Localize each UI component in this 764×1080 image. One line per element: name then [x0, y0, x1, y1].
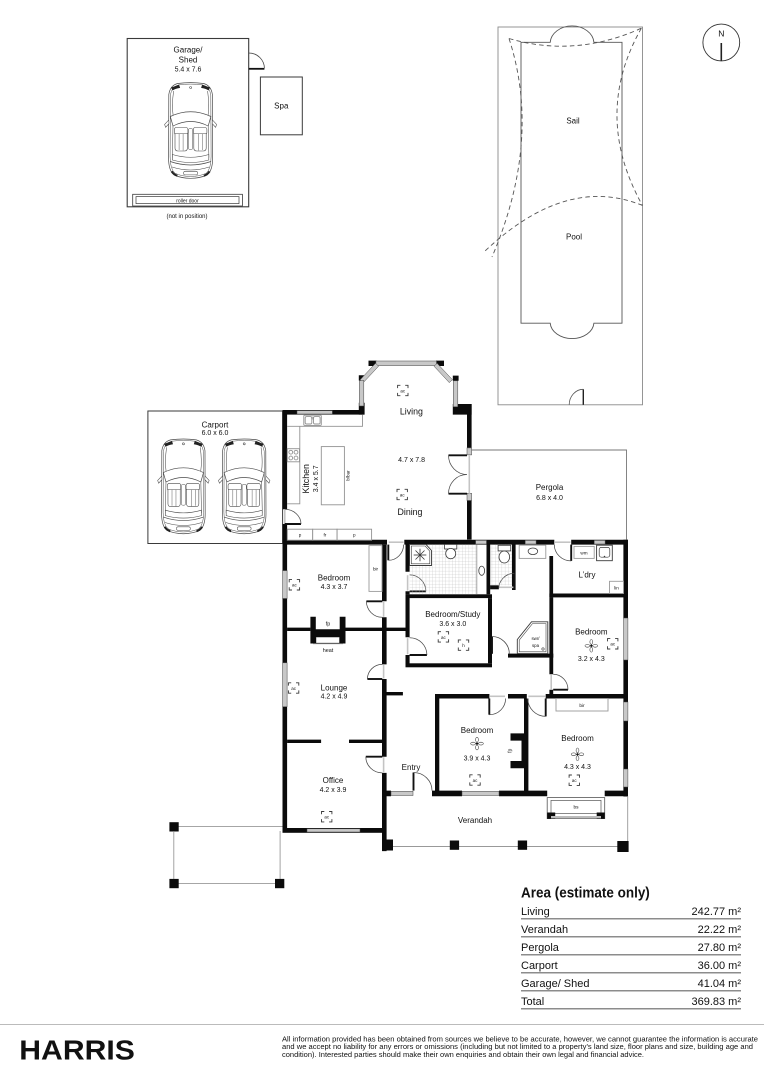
svg-text:p: p — [299, 533, 302, 538]
svg-text:L’dry: L’dry — [579, 571, 596, 580]
svg-text:Total: Total — [521, 996, 544, 1008]
svg-text:Verandah: Verandah — [458, 816, 492, 825]
svg-text:fp: fp — [326, 621, 331, 627]
svg-text:and we accept no liability for: and we accept no liability for any error… — [282, 1044, 753, 1051]
svg-text:Spa: Spa — [274, 102, 289, 111]
svg-text:Area (estimate only): Area (estimate only) — [521, 884, 650, 901]
svg-text:3.9 x 4.3: 3.9 x 4.3 — [464, 756, 491, 763]
svg-text:Carport: Carport — [521, 960, 558, 972]
svg-text:6.8 x 4.0: 6.8 x 4.0 — [536, 495, 563, 502]
svg-text:4.3 x 4.3: 4.3 x 4.3 — [564, 764, 591, 771]
svg-text:Shed: Shed — [179, 56, 198, 65]
svg-text:3.6 x 3.0: 3.6 x 3.0 — [439, 621, 466, 628]
svg-text:N: N — [718, 29, 724, 39]
svg-text:fp: fp — [508, 748, 514, 752]
svg-text:condition). Interested parties: condition). Interested parties should ma… — [282, 1052, 644, 1059]
svg-text:spa: spa — [532, 643, 540, 648]
svg-text:Pool: Pool — [566, 233, 582, 242]
svg-text:heat: heat — [323, 648, 334, 654]
svg-text:4.7 x 7.8: 4.7 x 7.8 — [398, 457, 425, 464]
svg-text:bs: bs — [573, 805, 579, 811]
svg-text:6.0 x 6.0: 6.0 x 6.0 — [202, 430, 229, 437]
svg-text:Living: Living — [521, 906, 550, 918]
svg-text:h: h — [462, 643, 465, 648]
svg-text:Carport: Carport — [202, 421, 229, 430]
svg-text:3.2 x 4.3: 3.2 x 4.3 — [578, 656, 605, 663]
svg-text:All information provided has b: All information provided has been obtain… — [282, 1036, 758, 1043]
svg-text:Sail: Sail — [566, 117, 580, 126]
svg-text:roller door: roller door — [176, 199, 199, 205]
svg-text:22.22 m²: 22.22 m² — [698, 924, 742, 936]
svg-text:Living: Living — [400, 406, 423, 416]
svg-text:Kitchen: Kitchen — [301, 464, 311, 493]
svg-text:Garage/ Shed: Garage/ Shed — [521, 978, 590, 990]
svg-text:Dining: Dining — [398, 507, 423, 517]
svg-text:36.00 m²: 36.00 m² — [698, 960, 742, 972]
svg-text:3.4 x 5.7: 3.4 x 5.7 — [313, 465, 320, 492]
svg-text:27.80 m²: 27.80 m² — [698, 942, 742, 954]
svg-text:5.4 x 7.6: 5.4 x 7.6 — [175, 67, 202, 74]
svg-text:4.2 x 4.9: 4.2 x 4.9 — [321, 694, 348, 701]
svg-text:bir: bir — [373, 567, 379, 572]
svg-text:Bedroom: Bedroom — [561, 734, 594, 743]
svg-text:4.2 x 3.9: 4.2 x 3.9 — [320, 787, 347, 794]
svg-text:Pergola: Pergola — [521, 942, 560, 954]
svg-text:Entry: Entry — [402, 763, 421, 772]
svg-text:Verandah: Verandah — [521, 924, 568, 936]
svg-text:wm: wm — [580, 550, 587, 555]
svg-text:p: p — [353, 533, 356, 538]
svg-text:bir: bir — [579, 703, 585, 709]
svg-text:369.83 m²: 369.83 m² — [691, 996, 741, 1008]
svg-text:(not in position): (not in position) — [166, 214, 207, 220]
svg-text:4.3 x 3.7: 4.3 x 3.7 — [321, 584, 348, 591]
svg-text:swr/: swr/ — [531, 636, 540, 641]
svg-text:lin: lin — [614, 585, 619, 590]
svg-text:b/bar: b/bar — [346, 470, 351, 481]
svg-text:Office: Office — [323, 776, 344, 785]
svg-text:242.77 m²: 242.77 m² — [691, 906, 741, 918]
svg-text:fr: fr — [323, 533, 326, 538]
svg-text:Bedroom: Bedroom — [575, 628, 608, 637]
svg-text:41.04 m²: 41.04 m² — [698, 978, 742, 990]
svg-text:Garage/: Garage/ — [174, 45, 204, 54]
svg-text:Bedroom: Bedroom — [318, 574, 351, 583]
svg-text:Bedroom/Study: Bedroom/Study — [425, 610, 480, 619]
svg-text:Pergola: Pergola — [536, 483, 564, 492]
svg-text:HARRIS: HARRIS — [19, 1035, 135, 1066]
svg-text:Lounge: Lounge — [321, 684, 348, 693]
svg-text:Bedroom: Bedroom — [461, 726, 494, 735]
